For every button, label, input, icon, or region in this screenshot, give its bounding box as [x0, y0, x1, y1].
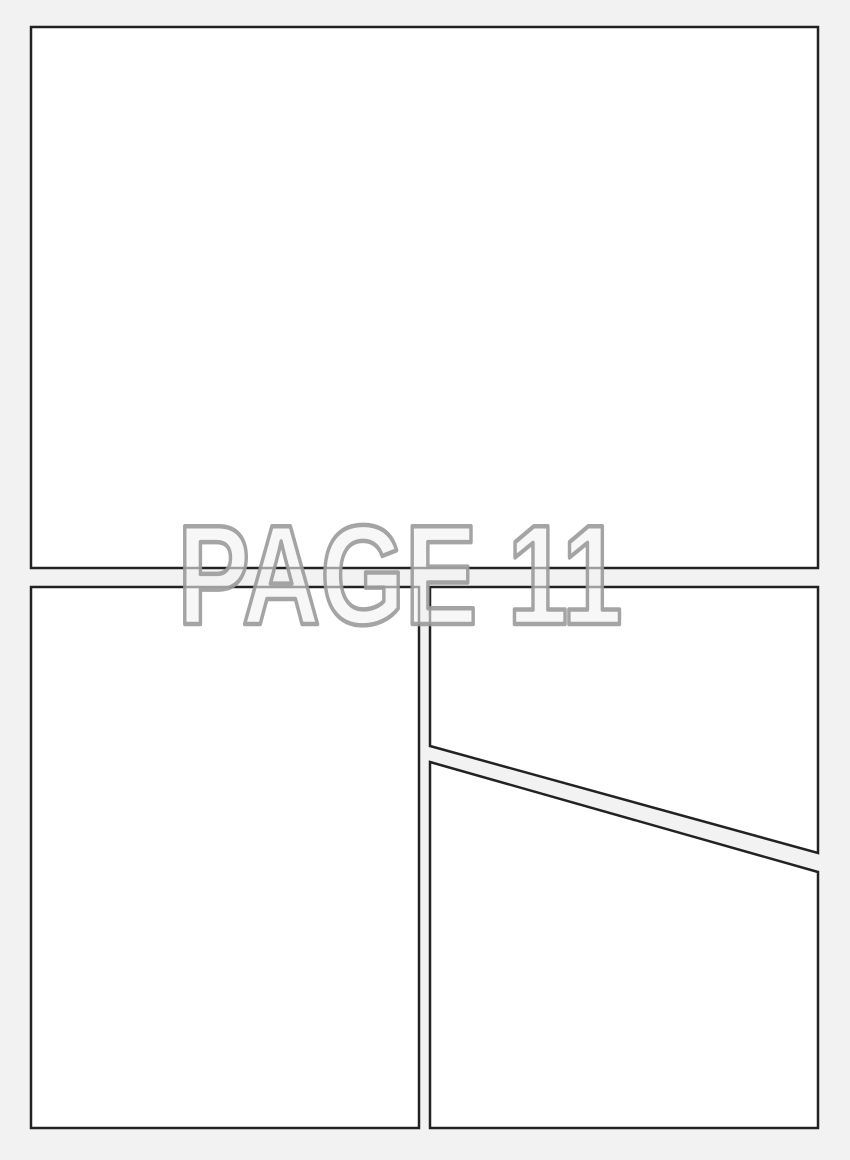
page-number-label: PAGE 11: [178, 496, 623, 655]
comic-panel-top: [31, 27, 818, 568]
comic-page-template: PAGE 11: [0, 0, 850, 1160]
comic-panel-bottom-left: [31, 587, 419, 1128]
